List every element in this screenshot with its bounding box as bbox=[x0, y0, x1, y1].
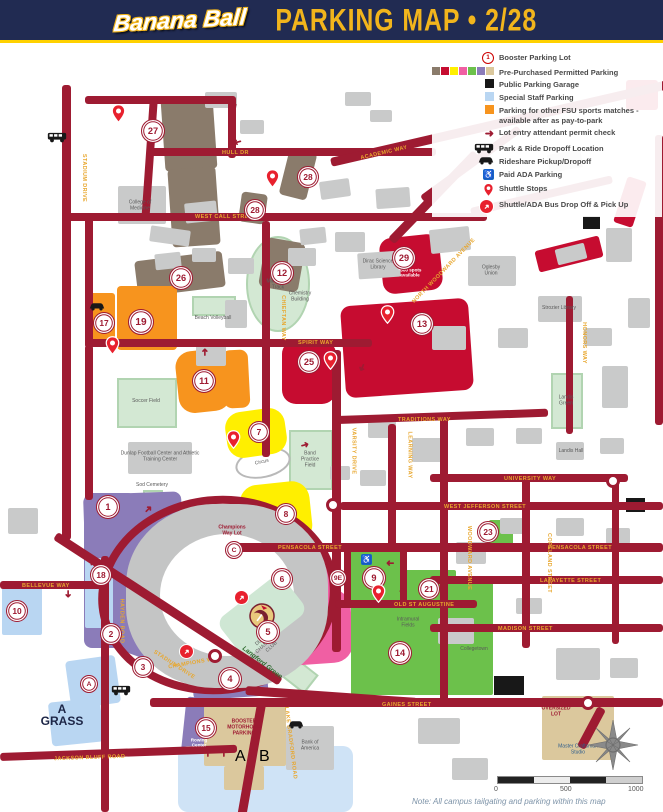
building bbox=[498, 328, 528, 348]
map-label: Dirac Science Library bbox=[360, 259, 396, 271]
building bbox=[319, 178, 351, 200]
road bbox=[85, 96, 235, 104]
road bbox=[522, 476, 530, 648]
booster-badge-icon: 1 bbox=[482, 52, 494, 64]
legend-label: Lot entry attendant permit check bbox=[499, 127, 615, 137]
building bbox=[192, 248, 216, 262]
park-and-ride-bus-icon bbox=[111, 683, 131, 701]
road-label: PENSACOLA STREET bbox=[548, 545, 612, 551]
legend-row: Park & Ride Dropoff Location bbox=[432, 143, 662, 154]
permit-swatch bbox=[486, 67, 494, 75]
permit-swatch bbox=[459, 67, 467, 75]
lot-badge-29: 29 bbox=[392, 246, 416, 270]
lot-badge-19: 19 bbox=[128, 309, 154, 335]
legend-row: ➜ Lot entry attendant permit check bbox=[432, 127, 662, 140]
roundabout bbox=[326, 498, 340, 512]
building bbox=[556, 518, 584, 536]
map-label: OVERSIZED LOT bbox=[538, 706, 574, 718]
roundabout bbox=[581, 696, 595, 710]
legend-row: 1 Booster Parking Lot bbox=[432, 52, 662, 64]
building bbox=[516, 428, 542, 444]
road-label: MADISON STREET bbox=[498, 626, 553, 632]
lot-badge-25: 25 bbox=[297, 350, 321, 374]
road-label: HONORS WAY bbox=[581, 322, 587, 364]
road-label: BELLEVUE WAY bbox=[22, 583, 70, 589]
rideshare-car-icon bbox=[288, 716, 304, 734]
bus-icon bbox=[432, 143, 499, 154]
shuttle-pin-icon bbox=[105, 336, 120, 355]
road-label: LAFAYETTE STREET bbox=[540, 578, 601, 584]
fsu-sports-swatch-icon bbox=[485, 105, 494, 114]
building bbox=[584, 328, 612, 346]
building bbox=[466, 428, 494, 446]
header-divider bbox=[0, 40, 663, 43]
map-label: Intramural Fields bbox=[391, 617, 425, 629]
road-label: LEARNING WAY bbox=[407, 431, 413, 478]
legend-row: Parking for other FSU sports matches - a… bbox=[432, 105, 662, 125]
lot-entry-arrow-icon: ➜ bbox=[248, 749, 258, 757]
lot-entry-arrow-icon: ➜ bbox=[201, 348, 211, 356]
lot-entry-arrow-icon: ➜ bbox=[204, 749, 214, 757]
map-label: College of Medicine bbox=[119, 200, 161, 212]
permit-swatch bbox=[441, 67, 449, 75]
building bbox=[335, 232, 365, 252]
shuttle-pin-icon bbox=[226, 430, 241, 449]
road-label: WOODWARD AVENUE bbox=[466, 526, 472, 590]
permit-color-swatches bbox=[432, 67, 499, 75]
entry-arrow-icon: ➜ bbox=[432, 127, 499, 140]
road-label: WEST JEFFERSON STREET bbox=[444, 504, 526, 510]
lot-badge-9E: 9E bbox=[329, 569, 347, 587]
legend-row: Shuttle Stops bbox=[432, 183, 662, 197]
park-and-ride-bus-icon bbox=[47, 130, 67, 148]
lot-badge-8: 8 bbox=[275, 503, 297, 525]
lot-badge-27: 27 bbox=[141, 119, 165, 143]
permit-swatch bbox=[468, 67, 476, 75]
map-label: Beach Volleyball bbox=[193, 316, 233, 322]
building bbox=[556, 648, 600, 680]
map-label: B bbox=[259, 748, 269, 766]
lot-badge-15: 15 bbox=[195, 717, 217, 739]
lot-badge-12: 12 bbox=[270, 261, 294, 285]
lot-bk bbox=[494, 676, 524, 695]
road-label: TRADITIONS WAY bbox=[398, 417, 451, 423]
car-icon bbox=[432, 156, 499, 165]
legend-label: Public Parking Garage bbox=[499, 79, 579, 89]
map-label: Oglesby Union bbox=[475, 265, 507, 277]
building bbox=[602, 366, 628, 408]
legend-label: Booster Parking Lot bbox=[499, 52, 571, 62]
lot-badge-1: 1 bbox=[96, 495, 120, 519]
lot-bk bbox=[583, 216, 600, 229]
building bbox=[228, 258, 254, 274]
building bbox=[8, 508, 38, 534]
building bbox=[370, 110, 392, 122]
lot-badge-6: 6 bbox=[271, 568, 293, 590]
header-bar: Banana Ball PARKING MAP • 2/28 bbox=[0, 0, 663, 40]
building bbox=[345, 92, 371, 106]
building bbox=[610, 658, 638, 678]
shuttle-dropoff-icon: ➜ bbox=[476, 196, 497, 217]
lot-badge-A: A bbox=[80, 675, 98, 693]
page-title: PARKING MAP • 2/28 bbox=[275, 2, 537, 38]
lot-badge-14: 14 bbox=[388, 641, 412, 665]
lot-entry-arrow-icon: ➜ bbox=[228, 97, 239, 109]
road bbox=[388, 424, 396, 549]
legend-row: Pre-Purchased Permitted Parking bbox=[432, 67, 662, 77]
road-label: COPELAND STREET bbox=[546, 533, 552, 593]
building bbox=[240, 120, 264, 134]
lot-badge-2: 2 bbox=[100, 623, 122, 645]
building bbox=[375, 187, 410, 209]
lot-badge-28: 28 bbox=[297, 166, 319, 188]
map-label: Landis Green bbox=[553, 395, 579, 407]
lot-badge-C: C bbox=[225, 541, 243, 559]
road bbox=[62, 85, 71, 540]
lot-badge-21: 21 bbox=[418, 578, 440, 600]
lot-entry-arrow-icon: ➜ bbox=[220, 749, 230, 757]
ada-icon: ♿ bbox=[483, 169, 494, 180]
map-label: Band Practice Field bbox=[295, 451, 325, 468]
road bbox=[612, 476, 619, 644]
building bbox=[628, 298, 650, 328]
permit-swatch bbox=[432, 67, 440, 75]
road bbox=[85, 218, 93, 348]
staff-swatch-icon bbox=[485, 92, 494, 101]
road bbox=[400, 546, 407, 606]
map-label: Sod Cemetery bbox=[130, 483, 174, 489]
lot-badge-28: 28 bbox=[244, 199, 266, 221]
map-label: Bank of America bbox=[296, 740, 324, 752]
road-label: OLD ST AUGUSTINE bbox=[394, 602, 454, 608]
lot-entry-arrow-icon: ➜ bbox=[232, 135, 243, 147]
legend-row: Rideshare Pickup/Dropoff bbox=[432, 156, 662, 166]
shuttle-pin-icon bbox=[380, 305, 395, 324]
road-label: PENSACOLA STREET bbox=[278, 545, 342, 551]
road-label: HULL DR bbox=[222, 150, 249, 156]
building bbox=[452, 758, 488, 780]
building bbox=[606, 228, 632, 262]
map-label: A GRASS bbox=[39, 703, 85, 727]
road bbox=[440, 418, 448, 706]
scale-segment bbox=[498, 777, 534, 783]
lot-badge-5: 5 bbox=[256, 620, 280, 644]
legend-label: Rideshare Pickup/Dropoff bbox=[499, 156, 591, 166]
building bbox=[600, 438, 624, 454]
map-label: Landis Hall bbox=[557, 449, 585, 455]
permit-swatch bbox=[477, 67, 485, 75]
compass-rose-icon bbox=[586, 718, 640, 777]
scale-segment bbox=[570, 777, 606, 783]
map-label: Champions Way Lot bbox=[217, 525, 247, 537]
lot-badge-4: 4 bbox=[218, 667, 242, 691]
road-label: STADIUM DRIVE bbox=[81, 154, 87, 202]
map-label: BOOSTER MOTORHOME PARKING bbox=[218, 719, 270, 736]
legend-row: ♿ Paid ADA Parking bbox=[432, 169, 662, 180]
road-label: JACKSON BLUFF ROAD bbox=[54, 754, 126, 762]
map-label: Soccer Field bbox=[131, 399, 161, 405]
map-legend: 1 Booster Parking Lot Pre-Purchased Perm… bbox=[432, 52, 662, 217]
building bbox=[288, 248, 316, 266]
road-label: GAINES STREET bbox=[382, 702, 432, 708]
lot-entry-arrow-icon: ➜ bbox=[399, 585, 407, 595]
building bbox=[432, 326, 466, 350]
road-label: SPIRIT WAY bbox=[298, 340, 333, 346]
legend-label: Park & Ride Dropoff Location bbox=[499, 143, 604, 153]
legend-label: Parking for other FSU sports matches - a… bbox=[499, 105, 659, 125]
legend-row: Special Staff Parking bbox=[432, 92, 662, 102]
shuttle-pin-icon bbox=[323, 351, 338, 370]
roundabout bbox=[606, 474, 620, 488]
map-label: Dunlap Football Center and Athletic Trai… bbox=[116, 451, 204, 463]
building bbox=[418, 718, 460, 744]
building bbox=[225, 300, 247, 328]
road bbox=[566, 296, 573, 434]
lot-entry-arrow-icon: ➜ bbox=[386, 557, 394, 567]
map-label: Chemistry Building bbox=[283, 291, 317, 303]
lot-badge-26: 26 bbox=[169, 266, 193, 290]
legend-label: Special Staff Parking bbox=[499, 92, 574, 102]
shuttle-pin-icon bbox=[111, 104, 126, 123]
lot-badge-18: 18 bbox=[90, 564, 112, 586]
lot-badge-11: 11 bbox=[192, 369, 216, 393]
shuttle-pin-icon bbox=[371, 584, 386, 603]
permit-swatch bbox=[450, 67, 458, 75]
lot-badge-7: 7 bbox=[248, 421, 270, 443]
map-label: Rowing Center bbox=[186, 738, 212, 749]
legend-row: ➜ Shuttle/ADA Bus Drop Off & Pick Up bbox=[432, 199, 662, 214]
legend-row: Public Parking Garage bbox=[432, 79, 662, 89]
rideshare-car-icon bbox=[89, 298, 105, 316]
lot-badge-3: 3 bbox=[132, 656, 154, 678]
garage-swatch-icon bbox=[485, 79, 494, 88]
building bbox=[299, 227, 327, 246]
lot-entry-arrow-icon: ➜ bbox=[62, 590, 72, 598]
building bbox=[360, 470, 386, 486]
ada-parking-icon: ♿ bbox=[361, 554, 372, 565]
roundabout bbox=[208, 649, 222, 663]
lot-badge-10: 10 bbox=[6, 600, 28, 622]
road bbox=[101, 556, 109, 812]
shuttle-pin-icon bbox=[432, 183, 499, 197]
scale-segment bbox=[606, 777, 642, 783]
lot-badge-23: 23 bbox=[477, 521, 499, 543]
legend-label: Paid ADA Parking bbox=[499, 169, 562, 179]
map-label: Collegetown bbox=[457, 647, 491, 653]
scale-segment bbox=[534, 777, 570, 783]
map-label: Strozier Library bbox=[539, 306, 579, 312]
scale-bar bbox=[497, 776, 643, 784]
banana-ball-logo: Banana Ball bbox=[113, 3, 248, 37]
legend-label: Pre-Purchased Permitted Parking bbox=[499, 67, 618, 77]
parking-map-page: Banana Ball PARKING MAP • 2/28 STADIUM D… bbox=[0, 0, 663, 812]
legend-label: Shuttle Stops bbox=[499, 183, 547, 193]
map-note: Note: All campus tailgating and parking … bbox=[412, 797, 606, 806]
lot-badge-13: 13 bbox=[410, 312, 434, 336]
shuttle-pin-icon bbox=[265, 169, 280, 188]
road-label: UNIVERSITY WAY bbox=[504, 476, 556, 482]
road bbox=[85, 345, 93, 500]
road-label: VARSITY DRIVE bbox=[350, 428, 356, 475]
map-label: A bbox=[235, 748, 245, 766]
legend-label: Shuttle/ADA Bus Drop Off & Pick Up bbox=[499, 199, 628, 209]
